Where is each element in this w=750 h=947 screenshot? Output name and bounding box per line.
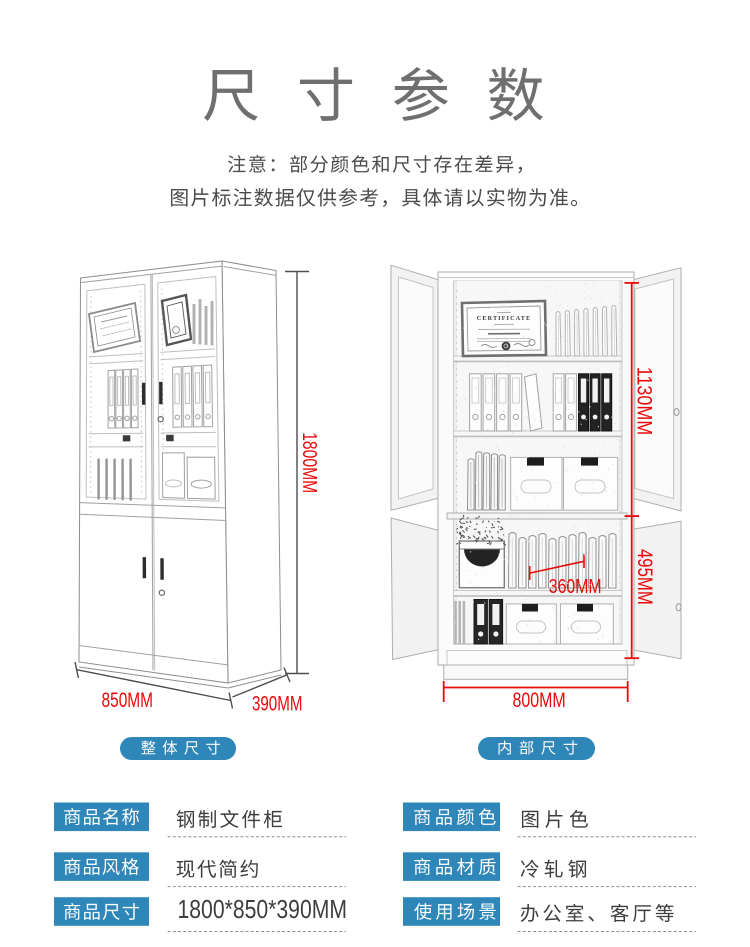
svg-text:1800MM: 1800MM: [298, 432, 321, 493]
svg-text:495MM: 495MM: [633, 549, 656, 605]
svg-text:800MM: 800MM: [513, 688, 566, 712]
svg-text:1130MM: 1130MM: [633, 367, 656, 435]
svg-text:1800*850*390MM: 1800*850*390MM: [178, 894, 348, 924]
svg-text:CERTIFICATE: CERTIFICATE: [477, 315, 531, 322]
svg-text:390MM: 390MM: [252, 692, 303, 716]
svg-text:360MM: 360MM: [549, 575, 602, 598]
svg-text:850MM: 850MM: [102, 688, 154, 712]
